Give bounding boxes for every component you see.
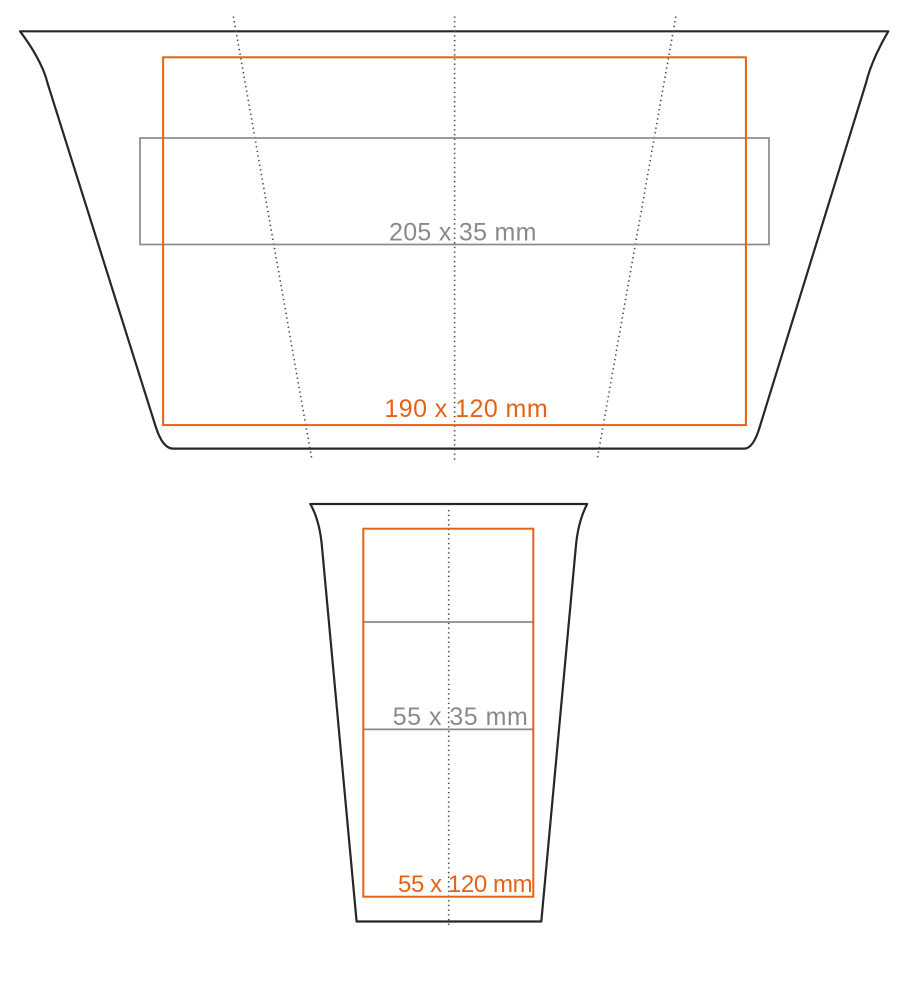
svg-text:190 x 120 mm: 190 x 120 mm xyxy=(384,395,548,423)
svg-text:55 x 35 mm: 55 x 35 mm xyxy=(393,703,529,731)
svg-text:205 x 35 mm: 205 x 35 mm xyxy=(389,219,537,247)
svg-text:55 x 120 mm: 55 x 120 mm xyxy=(398,871,532,898)
